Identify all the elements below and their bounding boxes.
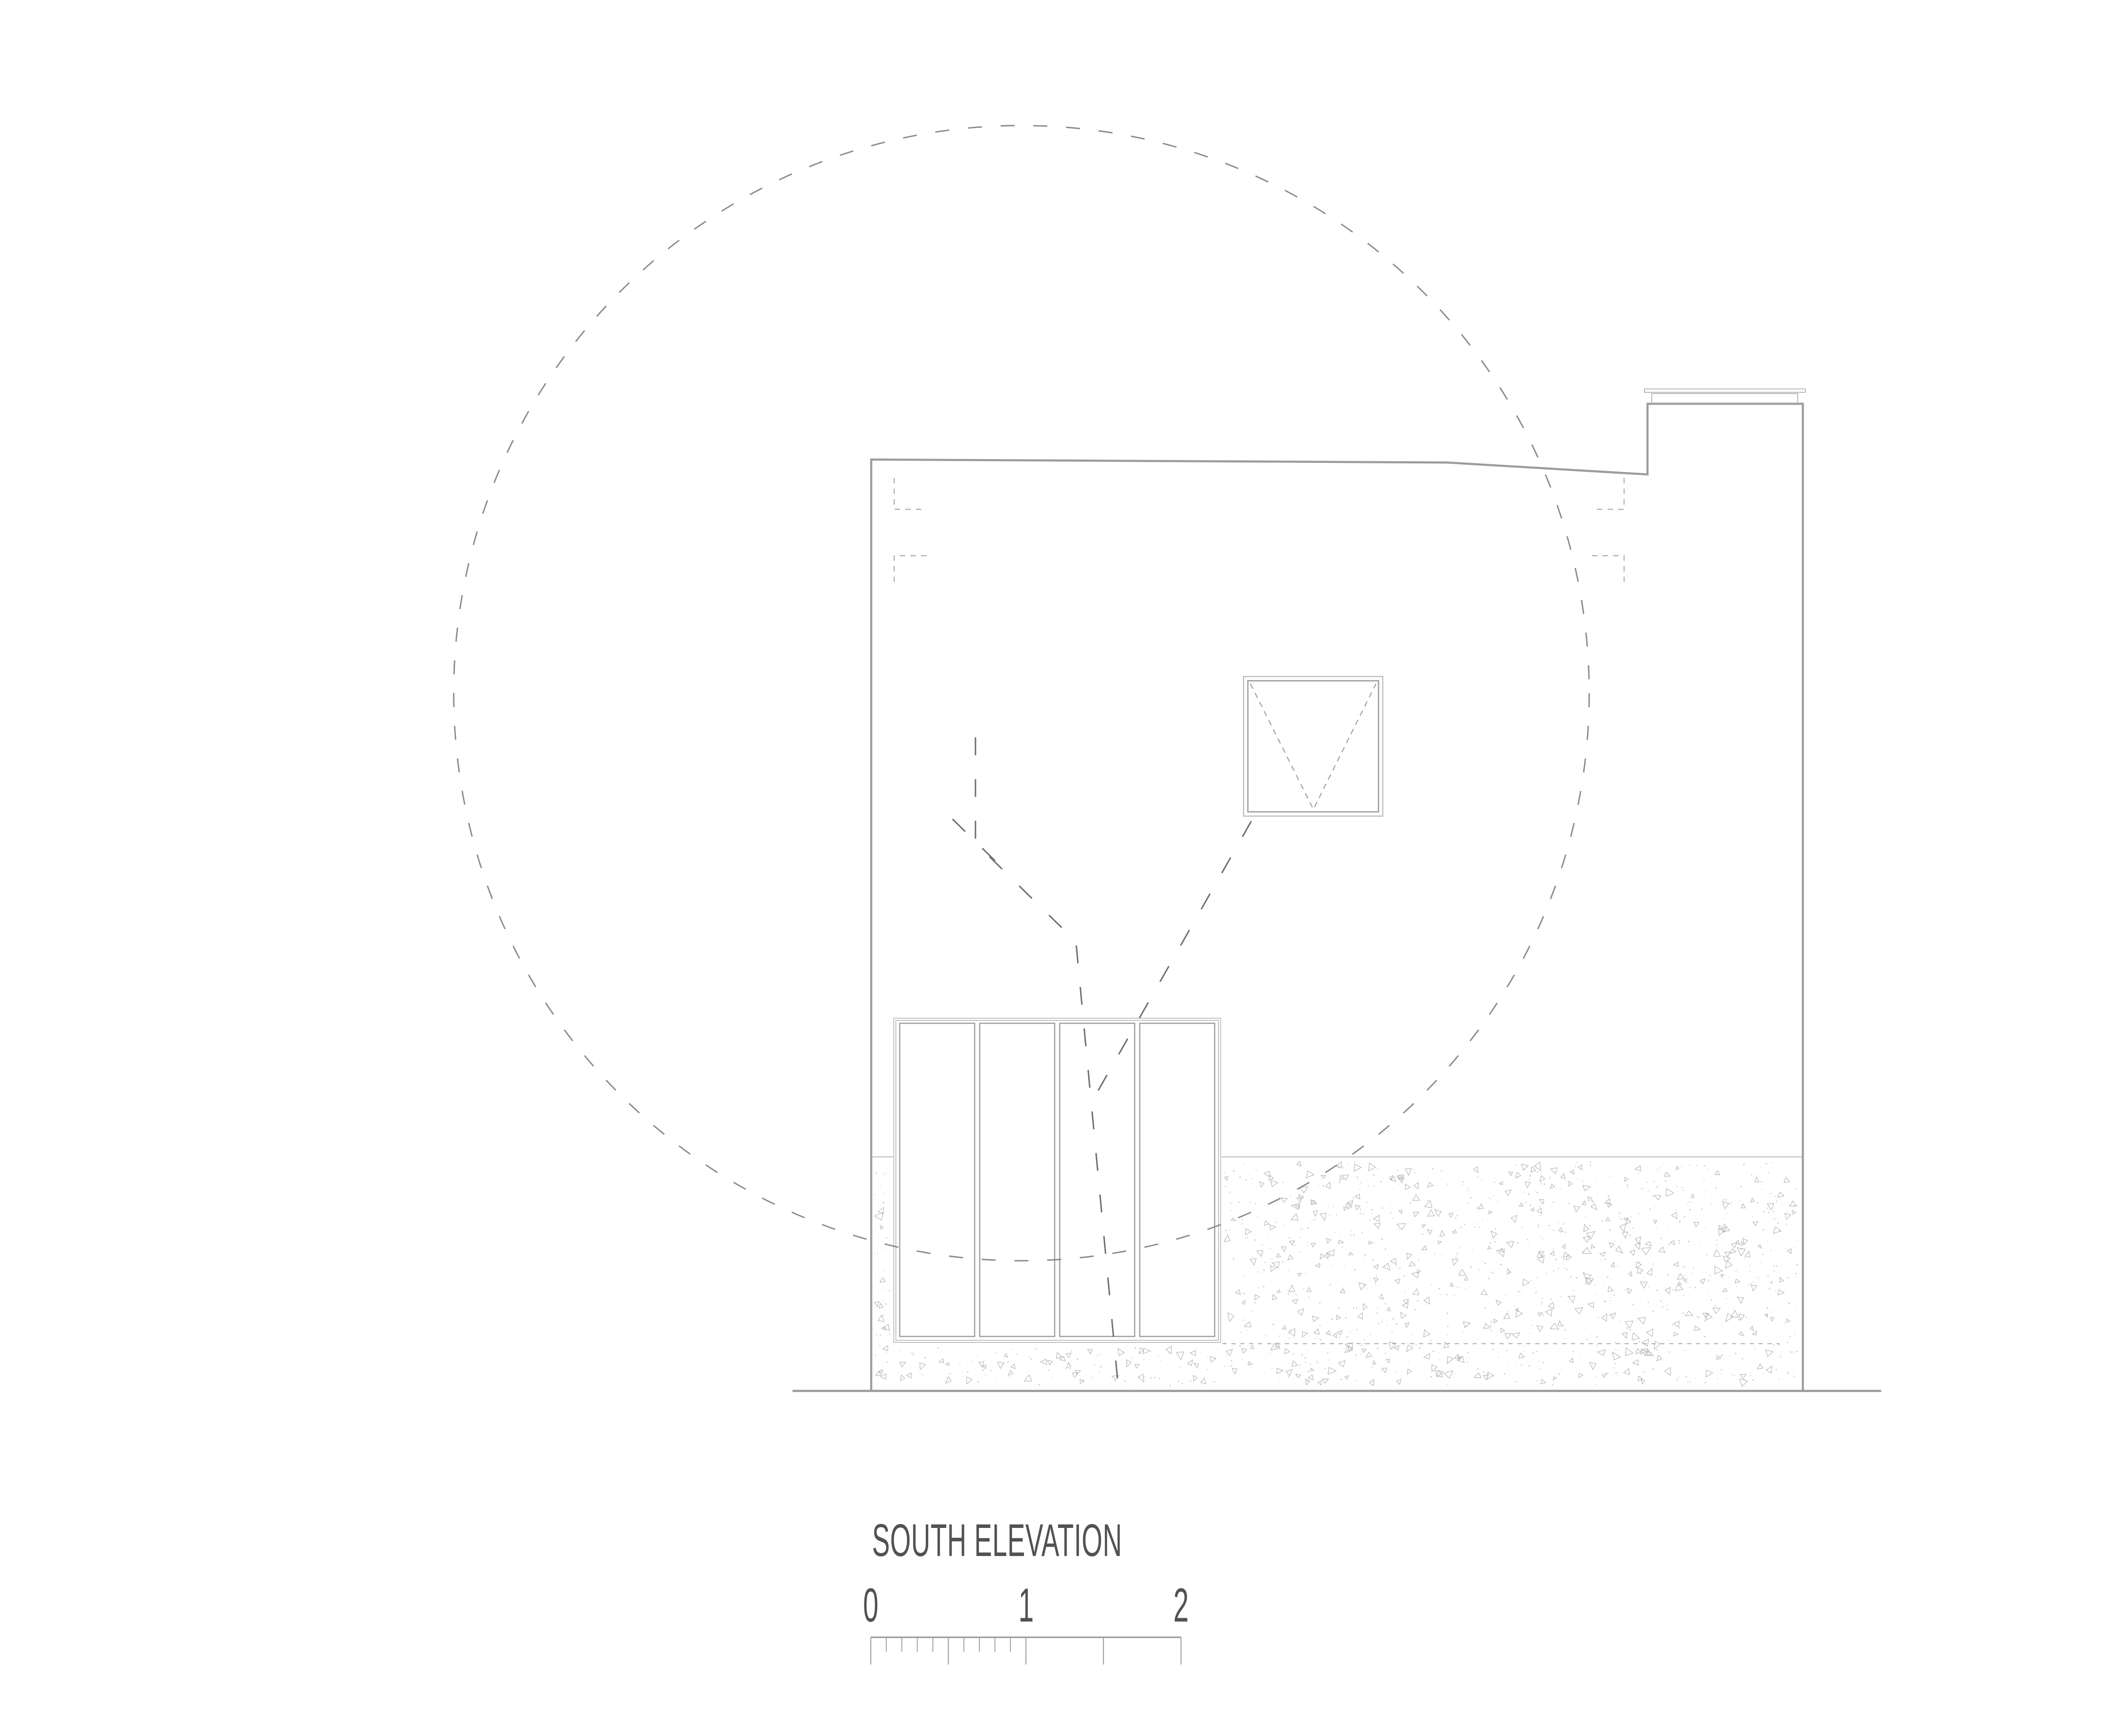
scale-label-0: 0	[863, 1582, 878, 1629]
window	[1244, 677, 1383, 816]
door-inner-frame	[896, 1020, 1218, 1340]
window-opening-dashes	[1250, 684, 1376, 809]
scale-label-2: 2	[1173, 1582, 1189, 1629]
parapet-coping	[1645, 389, 1805, 392]
scale-label-1: 1	[1018, 1582, 1034, 1629]
hidden-beam-dashes-right	[1592, 478, 1624, 587]
parapet-upstand	[1652, 394, 1798, 403]
window-outer-frame	[1244, 677, 1383, 816]
tree-trunk-dashes	[952, 737, 1251, 1389]
door-panel-3	[1060, 1023, 1135, 1336]
plinth-stipple-texture	[875, 1161, 1798, 1386]
plinth-sill-dashed-line	[1222, 1344, 1779, 1349]
hidden-beam-dashes-left	[894, 478, 927, 587]
south-elevation-drawing	[0, 0, 2128, 1736]
glazed-door	[894, 1018, 1221, 1342]
door-panel-1	[900, 1023, 975, 1336]
window-inner-frame	[1248, 681, 1379, 812]
door-panel-4	[1140, 1023, 1215, 1336]
tree-canopy-circle	[454, 126, 1589, 1261]
drawing-title: SOUTH ELEVATION	[872, 1517, 1122, 1563]
building-outline	[871, 404, 1803, 1391]
door-outer-frame	[894, 1018, 1221, 1342]
scale-bar	[871, 1637, 1181, 1665]
door-panel-2	[980, 1023, 1055, 1336]
